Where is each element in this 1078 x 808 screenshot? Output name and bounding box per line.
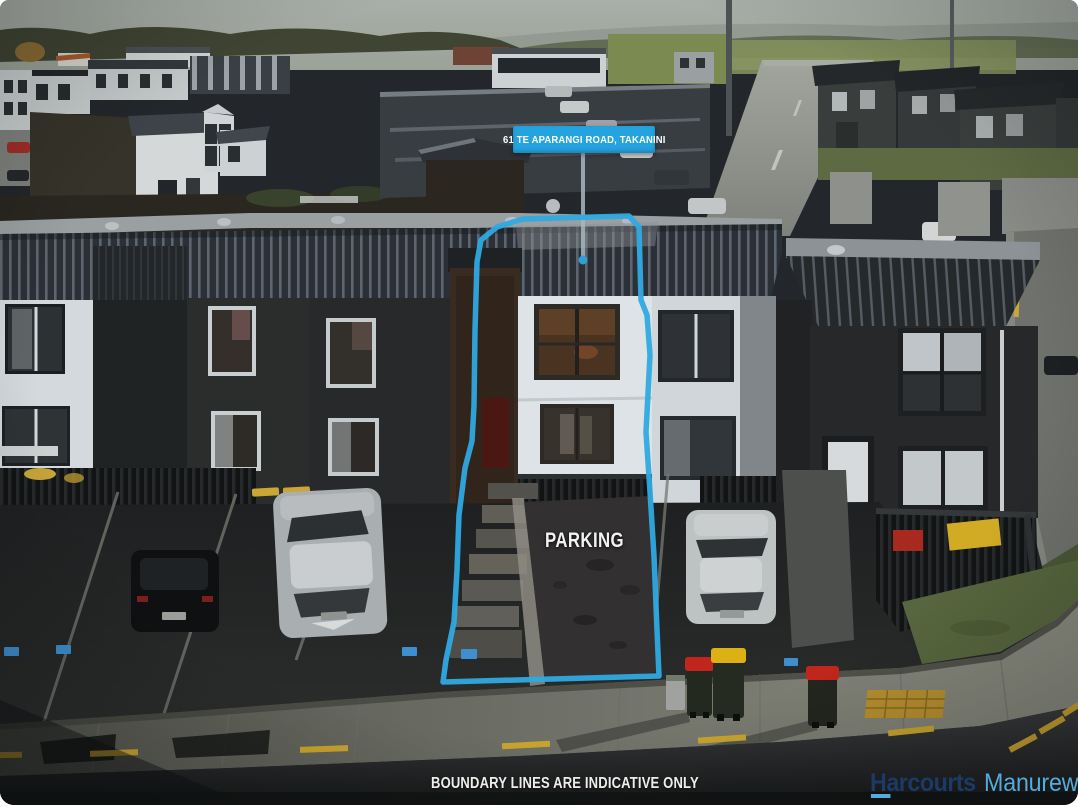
agency-wordmark: Harcourts xyxy=(870,769,976,797)
vignette xyxy=(0,0,1078,805)
agency-logo: HarcourtsManurewa xyxy=(870,769,1078,798)
listing-photo-page: 61 TE APARANGI ROAD, TAKANINI PARKING BO… xyxy=(0,0,1078,808)
banner-pointer-dot xyxy=(579,256,588,265)
parking-label: PARKING xyxy=(545,529,624,553)
aerial-photo: 61 TE APARANGI ROAD, TAKANINI PARKING BO… xyxy=(0,0,1078,805)
boundary-disclaimer: BOUNDARY LINES ARE INDICATIVE ONLY xyxy=(431,775,699,793)
logo-underline xyxy=(871,794,891,798)
office-name: Manurewa xyxy=(984,769,1078,797)
address-banner: 61 TE APARANGI ROAD, TAKANINI xyxy=(513,126,655,153)
address-banner-text: 61 TE APARANGI ROAD, TAKANINI xyxy=(503,134,666,146)
photo-scene xyxy=(0,0,1078,805)
